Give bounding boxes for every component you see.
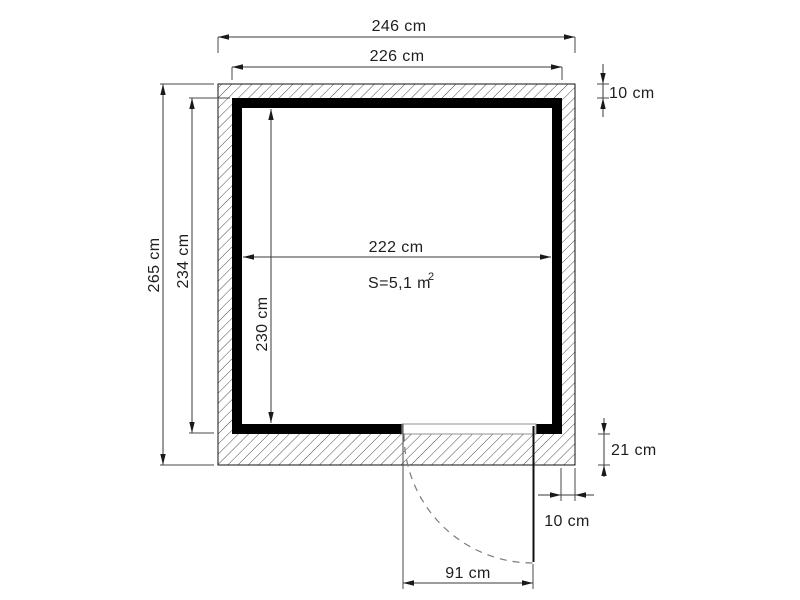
dim-label-base-bottom: 21 cm (611, 442, 657, 459)
dim-label-wall-width: 226 cm (370, 48, 425, 65)
floor-area-text: S=5,1 m (368, 275, 431, 292)
door-opening (402, 424, 536, 434)
dim-label-overhang-top: 10 cm (609, 85, 655, 102)
dim-label-interior-width: 222 cm (369, 239, 424, 256)
dim-label-outer-depth: 265 cm (146, 238, 163, 293)
floor-area-exponent: 2 (428, 271, 435, 283)
dim-label-door-width: 91 cm (445, 565, 491, 582)
interior-floor (242, 108, 552, 424)
dim-label-interior-depth: 230 cm (254, 297, 271, 352)
dim-label-wall-depth: 234 cm (175, 234, 192, 289)
floor-plan-drawing: 246 cm 226 cm 10 cm 265 cm 234 cm (0, 0, 800, 600)
floor-area-label: S=5,1 m 2 (368, 271, 435, 292)
dim-label-outer-width: 246 cm (372, 18, 427, 35)
dim-label-overhang-side: 10 cm (544, 513, 590, 530)
floor-plan-canvas: 246 cm 226 cm 10 cm 265 cm 234 cm (0, 0, 800, 600)
